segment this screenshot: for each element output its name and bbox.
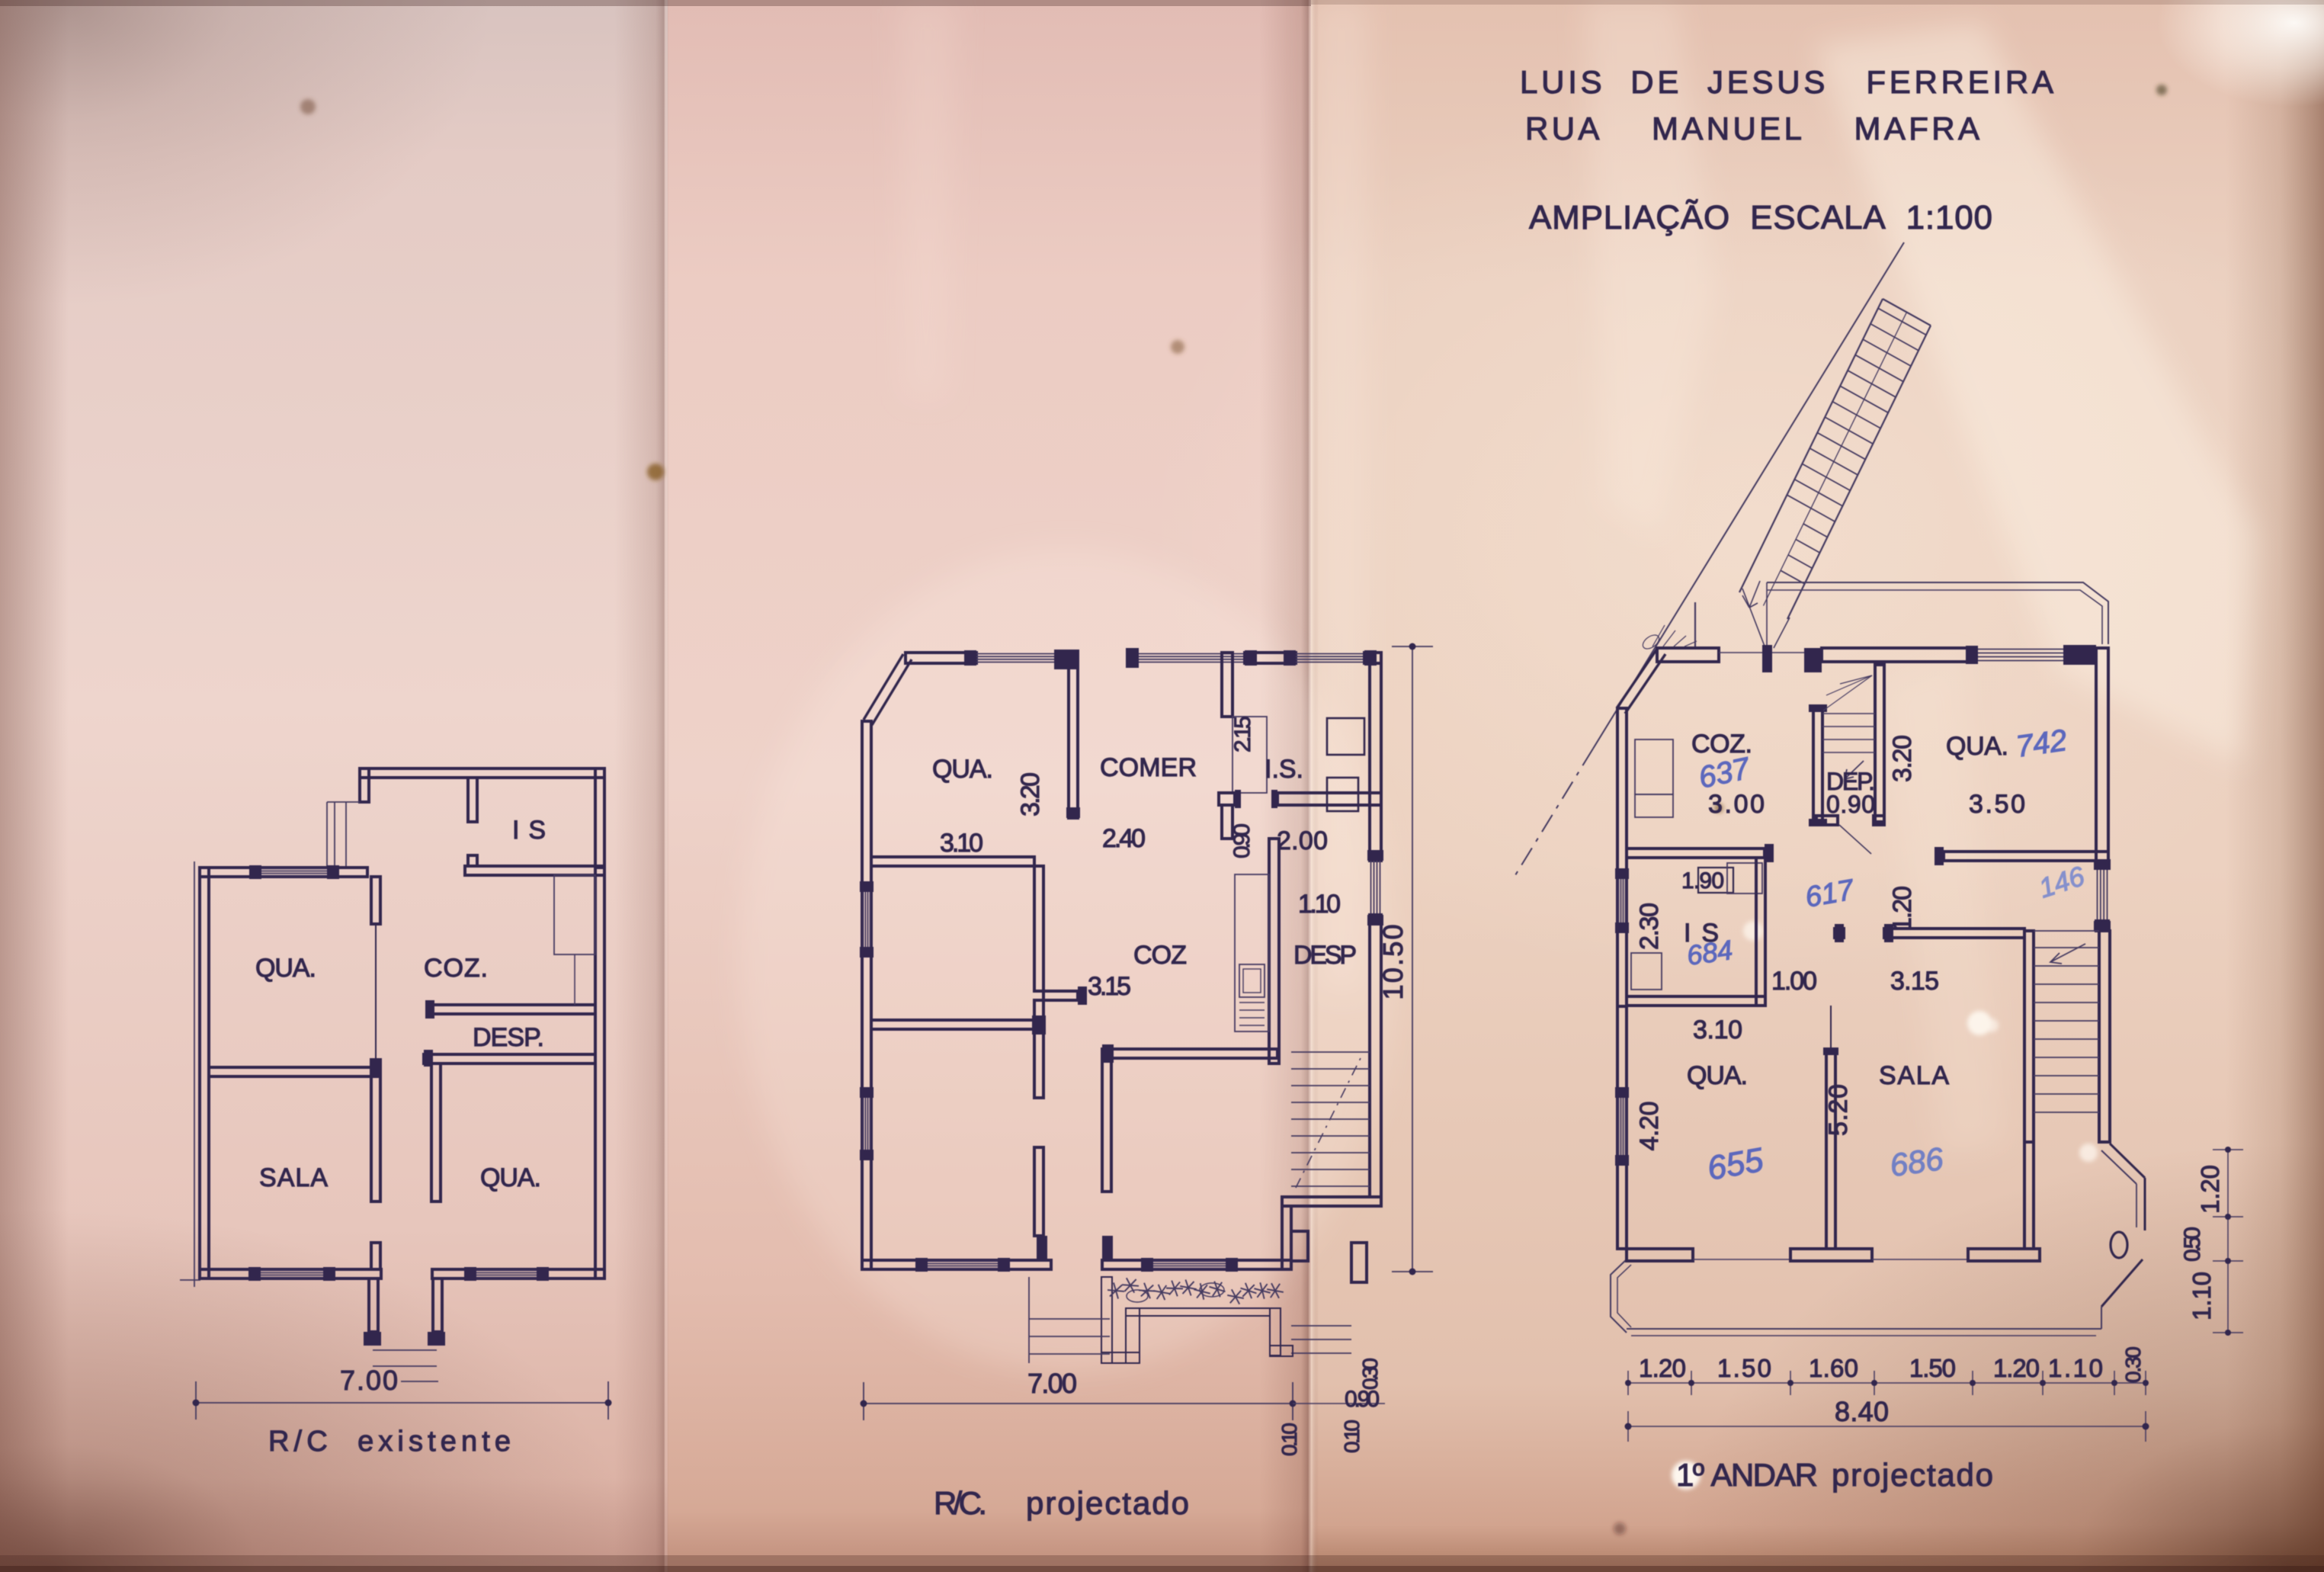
svg-text:projectado: projectado bbox=[1832, 1457, 1993, 1493]
svg-text:1.20: 1.20 bbox=[1993, 1354, 2040, 1382]
svg-text:QUA.: QUA. bbox=[932, 755, 993, 784]
svg-text:0.30: 0.30 bbox=[2121, 1346, 2145, 1383]
svg-text:686: 686 bbox=[1888, 1141, 1947, 1183]
svg-text:3.15: 3.15 bbox=[1088, 972, 1131, 1001]
svg-text:RUA MANUEL MAFRA: RUA MANUEL MAFRA bbox=[1525, 111, 1979, 146]
svg-text:1.10: 1.10 bbox=[2048, 1354, 2103, 1382]
svg-text:DESP: DESP bbox=[1293, 941, 1357, 970]
svg-text:1.50: 1.50 bbox=[1717, 1354, 1771, 1382]
svg-text:1.90: 1.90 bbox=[1681, 868, 1724, 893]
svg-text:0.30: 0.30 bbox=[1358, 1358, 1382, 1390]
svg-text:3.10: 3.10 bbox=[940, 829, 983, 858]
svg-text:4.20: 4.20 bbox=[1635, 1102, 1664, 1151]
svg-text:3.20: 3.20 bbox=[1888, 735, 1917, 782]
svg-text:QUA.: QUA. bbox=[1946, 732, 2008, 761]
svg-text:LUIS DE JESUS FERREIRA: LUIS DE JESUS FERREIRA bbox=[1520, 64, 2053, 100]
svg-text:7.00: 7.00 bbox=[1027, 1368, 1077, 1399]
svg-text:1.00: 1.00 bbox=[1771, 967, 1817, 996]
svg-text:R/C.: R/C. bbox=[934, 1485, 987, 1521]
svg-text:2.30: 2.30 bbox=[1635, 903, 1664, 950]
svg-text:2.15: 2.15 bbox=[1230, 716, 1255, 752]
svg-text:COZ: COZ bbox=[1133, 941, 1187, 970]
svg-text:SALA: SALA bbox=[1879, 1061, 1949, 1090]
svg-text:0.10: 0.10 bbox=[1340, 1420, 1364, 1453]
svg-text:1.10: 1.10 bbox=[2188, 1272, 2216, 1320]
svg-text:QUA.: QUA. bbox=[480, 1163, 541, 1192]
svg-text:7.00: 7.00 bbox=[340, 1365, 398, 1396]
svg-text:5.20: 5.20 bbox=[1824, 1084, 1853, 1136]
svg-text:SALA: SALA bbox=[259, 1163, 328, 1192]
svg-text:2.00: 2.00 bbox=[1277, 826, 1328, 855]
svg-text:3.00: 3.00 bbox=[1708, 790, 1765, 819]
svg-text:0.90: 0.90 bbox=[1229, 823, 1255, 858]
svg-text:QUA.: QUA. bbox=[255, 954, 316, 983]
svg-text:I.S.: I.S. bbox=[1265, 755, 1303, 784]
svg-text:684: 684 bbox=[1684, 934, 1734, 971]
svg-text:QUA.: QUA. bbox=[1687, 1061, 1748, 1090]
svg-text:1.60: 1.60 bbox=[1809, 1354, 1858, 1382]
svg-text:1.20: 1.20 bbox=[2196, 1165, 2224, 1214]
svg-text:I S: I S bbox=[512, 816, 546, 845]
svg-text:AMPLIAÇÃO ESCALA 1:100: AMPLIAÇÃO ESCALA 1:100 bbox=[1529, 198, 1992, 236]
svg-text:COMER: COMER bbox=[1100, 753, 1197, 782]
svg-text:3.50: 3.50 bbox=[1969, 790, 2025, 819]
svg-text:2.40: 2.40 bbox=[1102, 824, 1146, 853]
svg-text:1.50: 1.50 bbox=[1909, 1354, 1956, 1382]
svg-text:0.90: 0.90 bbox=[1826, 791, 1875, 818]
svg-text:3.20: 3.20 bbox=[1016, 772, 1045, 816]
svg-text:742: 742 bbox=[2014, 723, 2069, 764]
svg-text:0.10: 0.10 bbox=[1277, 1423, 1301, 1456]
svg-text:1º ANDAR: 1º ANDAR bbox=[1676, 1457, 1818, 1493]
svg-text:COZ.: COZ. bbox=[424, 954, 488, 983]
svg-text:3.10: 3.10 bbox=[1693, 1015, 1742, 1044]
svg-text:projectado: projectado bbox=[1026, 1485, 1189, 1521]
svg-text:8.40: 8.40 bbox=[1835, 1396, 1889, 1427]
svg-text:1.10: 1.10 bbox=[1298, 890, 1341, 919]
svg-text:DESP.: DESP. bbox=[473, 1023, 544, 1052]
svg-text:3.15: 3.15 bbox=[1890, 967, 1939, 996]
svg-text:0.50: 0.50 bbox=[2180, 1227, 2205, 1262]
svg-text:1.20: 1.20 bbox=[1639, 1354, 1686, 1382]
svg-text:10.50: 10.50 bbox=[1377, 925, 1409, 1000]
svg-text:1.20: 1.20 bbox=[1888, 886, 1917, 932]
